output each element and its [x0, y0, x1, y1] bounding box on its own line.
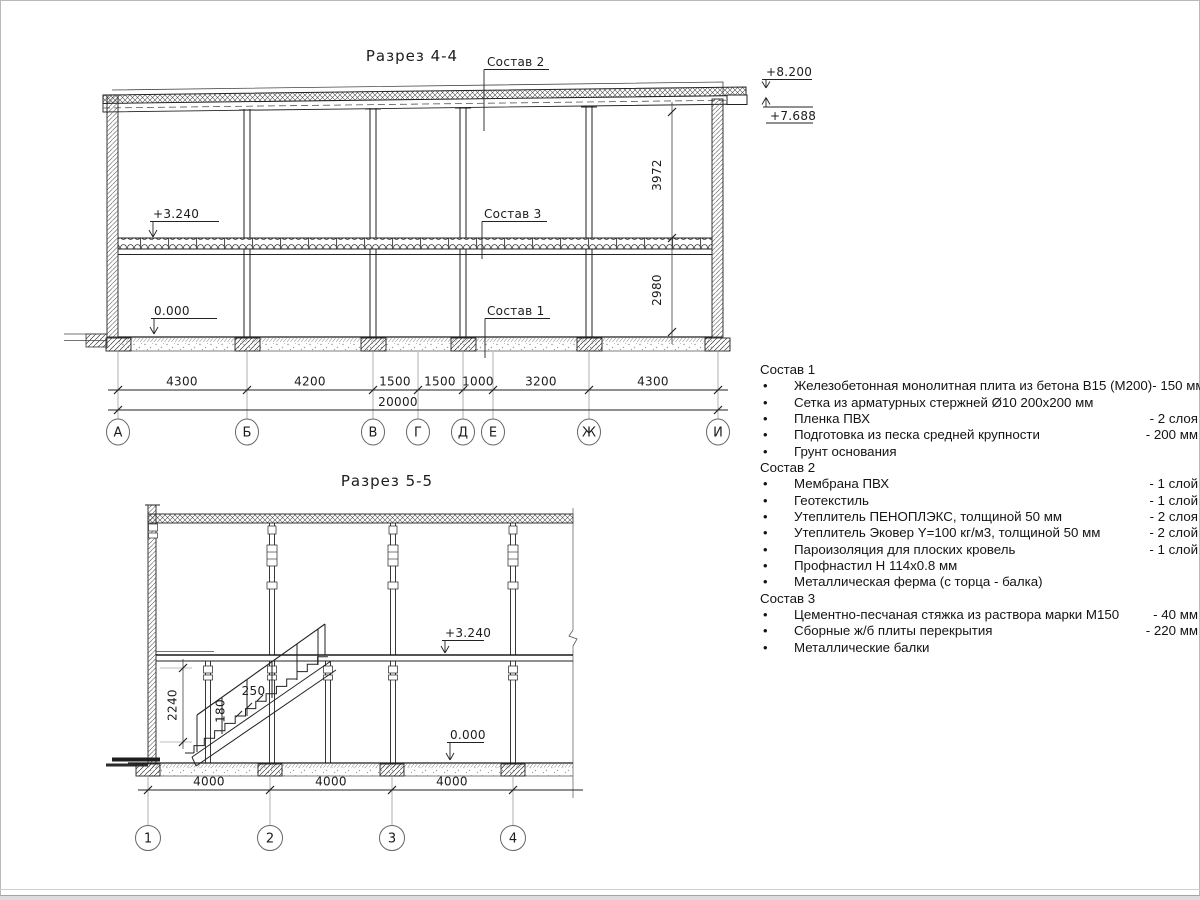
wall-left-55: [148, 505, 156, 763]
stair-dimension-250: 250: [242, 684, 266, 709]
legend-group-title: Состав 2: [760, 460, 1199, 476]
axis-bubbles: А Б В Г Д Е Ж И: [107, 419, 730, 445]
upper-columns: [239, 106, 597, 238]
axis-label: Б: [243, 426, 252, 441]
wall-right: [712, 99, 723, 337]
axis-label: 2: [266, 832, 274, 847]
vertical-dimension: 3972 2980: [650, 102, 676, 344]
legend-item: •Пароизоляция для плоских кровель- 1 сло…: [760, 542, 1199, 558]
materials-legend: Состав 1 •Железобетонная монолитная плит…: [760, 362, 1199, 656]
left-ramp: [64, 334, 107, 347]
section-4-4: Разрез 4-4: [64, 47, 816, 445]
dim-label: 4200: [294, 375, 326, 389]
dim-total-label: 20000: [378, 395, 418, 409]
bullet-icon: •: [760, 395, 794, 411]
section-5-5-title: Разрез 5-5: [341, 472, 433, 490]
bullet-icon: •: [760, 542, 794, 558]
bullet-icon: •: [760, 525, 794, 541]
dim-label: 4300: [637, 375, 669, 389]
svg-text:+3.240: +3.240: [153, 207, 199, 221]
section-break-edge: [567, 508, 579, 798]
elevation-zero-55: 0.000: [446, 728, 486, 760]
dim-label: 4000: [436, 775, 468, 789]
svg-text:Состав 3: Состав 3: [484, 207, 542, 221]
axis-label: Д: [458, 426, 468, 441]
dim-label: 1000: [462, 375, 494, 389]
floor-slab: [118, 238, 712, 249]
section-4-4-title: Разрез 4-4: [366, 47, 458, 65]
axis-label: Е: [489, 426, 497, 441]
dim-label: 1500: [379, 375, 411, 389]
bullet-icon: •: [760, 378, 794, 394]
svg-text:+3.240: +3.240: [445, 626, 491, 640]
entrance-step: [112, 758, 160, 762]
page-bottom-line: [0, 889, 1200, 890]
elevation-roof-low: +7.688: [762, 98, 816, 124]
dim-label-vertical: 3972: [650, 159, 664, 191]
elevation-floor-44: +3.240: [149, 207, 219, 237]
dim-label: 3200: [525, 375, 557, 389]
elevation-roof-top: +8.200: [762, 65, 812, 88]
bullet-icon: •: [760, 509, 794, 525]
axis-label: 1: [144, 832, 152, 847]
svg-text:Состав 2: Состав 2: [487, 55, 545, 69]
bullet-icon: •: [760, 574, 794, 590]
legend-item: •Цементно-песчаная стяжка из раствора ма…: [760, 607, 1199, 623]
section-5-5: Разрез 5-5: [106, 472, 583, 851]
svg-text:+7.688: +7.688: [770, 109, 816, 123]
leader-sostav-3: Состав 3: [482, 207, 547, 259]
lower-columns: [244, 249, 592, 337]
roof-slab: [103, 87, 747, 112]
svg-text:Состав 1: Состав 1: [487, 304, 545, 318]
svg-text:+8.200: +8.200: [766, 65, 812, 79]
bullet-icon: •: [760, 623, 794, 639]
bullet-icon: •: [760, 411, 794, 427]
legend-item: •Металлические балки: [760, 640, 1199, 656]
legend-item: •Пленка ПВХ- 2 слоя: [760, 411, 1199, 427]
legend-item: •Утеплитель Эковер Y=100 кг/м3, толщиной…: [760, 525, 1199, 541]
legend-item: •Грунт основания: [760, 444, 1199, 460]
bullet-icon: •: [760, 640, 794, 656]
elevation-zero-44: 0.000: [150, 304, 217, 334]
axis-label: Ж: [582, 426, 596, 441]
bullet-icon: •: [760, 427, 794, 443]
elevation-floor-55: +3.240: [441, 626, 491, 653]
roof-slab-55: [148, 514, 573, 523]
legend-item: •Мембрана ПВХ- 1 слой: [760, 476, 1199, 492]
bullet-icon: •: [760, 493, 794, 509]
legend-item: •Геотекстиль- 1 слой: [760, 493, 1199, 509]
axis-label: А: [114, 426, 123, 441]
ground-slab: [118, 337, 712, 351]
extension-lines: [118, 352, 718, 419]
stair-dimension-180: 180: [214, 699, 243, 723]
legend-item: •Профнастил Н 114х0.8 мм: [760, 558, 1199, 574]
bullet-icon: •: [760, 607, 794, 623]
dim-label: 4000: [315, 775, 347, 789]
svg-text:180: 180: [214, 699, 228, 723]
axis-label: И: [713, 426, 723, 441]
bullet-icon: •: [760, 558, 794, 574]
axis-bubbles-55: 1 2 3 4: [136, 826, 526, 851]
dim-label: 1500: [424, 375, 456, 389]
dimension-chain-55: 4000 4000 4000: [138, 775, 583, 795]
legend-item: •Подготовка из песка средней крупности- …: [760, 427, 1199, 443]
axis-label: Г: [414, 426, 422, 441]
window-bottom-edge: [0, 895, 1200, 900]
dim-label: 4000: [193, 775, 225, 789]
legend-item: •Сетка из арматурных стержней Ø10 200х20…: [760, 395, 1199, 411]
bullet-icon: •: [760, 476, 794, 492]
legend-item: •Металлическая ферма (с торца - балка): [760, 574, 1199, 590]
svg-text:0.000: 0.000: [154, 304, 190, 318]
legend-item: •Железобетонная монолитная плита из бето…: [760, 378, 1199, 394]
dim-label: 4300: [166, 375, 198, 389]
wall-left: [107, 95, 118, 337]
drawing-sheet: Разрез 4-4: [0, 0, 1200, 900]
dim-label-vertical: 2980: [650, 274, 664, 306]
bullet-icon: •: [760, 444, 794, 460]
roof-end-cap: [727, 95, 747, 105]
legend-group-title: Состав 1: [760, 362, 1199, 378]
axis-label: В: [369, 426, 378, 441]
axis-label: 3: [388, 832, 396, 847]
svg-text:0.000: 0.000: [450, 728, 486, 742]
legend-item: •Сборные ж/б плиты перекрытия- 220 мм: [760, 623, 1199, 639]
legend-item: •Утеплитель ПЕНОПЛЭКС, толщиной 50 мм- 2…: [760, 509, 1199, 525]
svg-text:2240: 2240: [166, 689, 180, 721]
legend-group-title: Состав 3: [760, 591, 1199, 607]
axis-label: 4: [509, 832, 517, 847]
stair-dimension-2240: 2240: [160, 659, 192, 749]
